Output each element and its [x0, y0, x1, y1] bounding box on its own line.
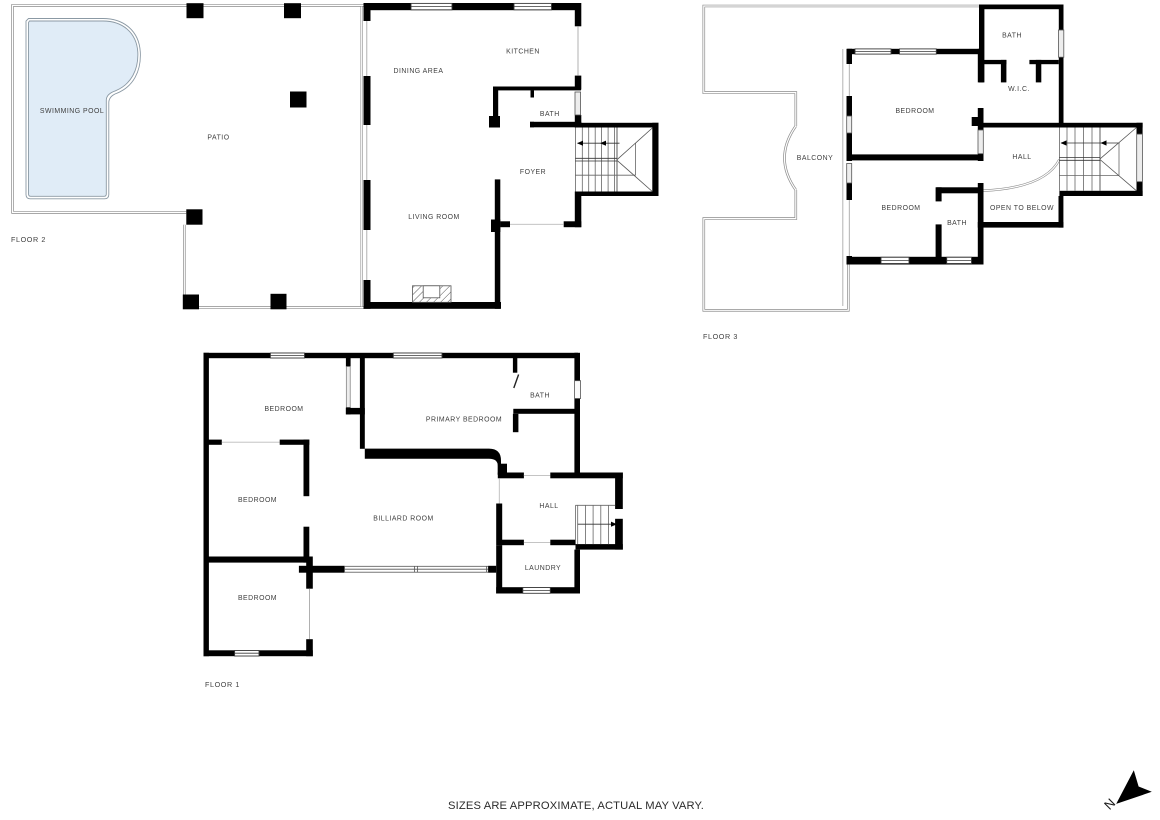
svg-text:BATH: BATH	[540, 111, 560, 118]
svg-text:HALL: HALL	[539, 503, 558, 510]
svg-text:BILLIARD ROOM: BILLIARD ROOM	[373, 516, 434, 523]
svg-text:SIZES ARE APPROXIMATE, ACTUAL: SIZES ARE APPROXIMATE, ACTUAL MAY VARY.	[448, 800, 704, 812]
svg-text:LIVING ROOM: LIVING ROOM	[408, 214, 459, 221]
svg-text:FLOOR 3: FLOOR 3	[703, 332, 738, 341]
svg-text:BEDROOM: BEDROOM	[238, 595, 277, 602]
svg-text:BEDROOM: BEDROOM	[881, 205, 920, 212]
svg-text:LAUNDRY: LAUNDRY	[525, 565, 561, 572]
svg-text:SWIMMING POOL: SWIMMING POOL	[40, 108, 104, 115]
svg-text:HALL: HALL	[1012, 154, 1031, 161]
svg-text:BATH: BATH	[947, 220, 967, 227]
svg-text:FOYER: FOYER	[520, 169, 546, 176]
svg-text:BATH: BATH	[1002, 33, 1022, 40]
svg-text:PRIMARY BEDROOM: PRIMARY BEDROOM	[426, 417, 502, 424]
svg-text:OPEN TO BELOW: OPEN TO BELOW	[990, 205, 1054, 212]
svg-text:PATIO: PATIO	[207, 135, 229, 142]
svg-text:BEDROOM: BEDROOM	[238, 497, 277, 504]
svg-text:BEDROOM: BEDROOM	[895, 108, 934, 115]
svg-text:DINING AREA: DINING AREA	[394, 68, 444, 75]
svg-text:FLOOR 1: FLOOR 1	[205, 680, 240, 689]
svg-text:FLOOR 2: FLOOR 2	[11, 235, 46, 244]
svg-text:BATH: BATH	[530, 393, 550, 400]
svg-text:KITCHEN: KITCHEN	[506, 49, 540, 56]
svg-text:W.I.C.: W.I.C.	[1008, 86, 1030, 93]
svg-text:BEDROOM: BEDROOM	[264, 406, 303, 413]
svg-text:BALCONY: BALCONY	[797, 155, 833, 162]
